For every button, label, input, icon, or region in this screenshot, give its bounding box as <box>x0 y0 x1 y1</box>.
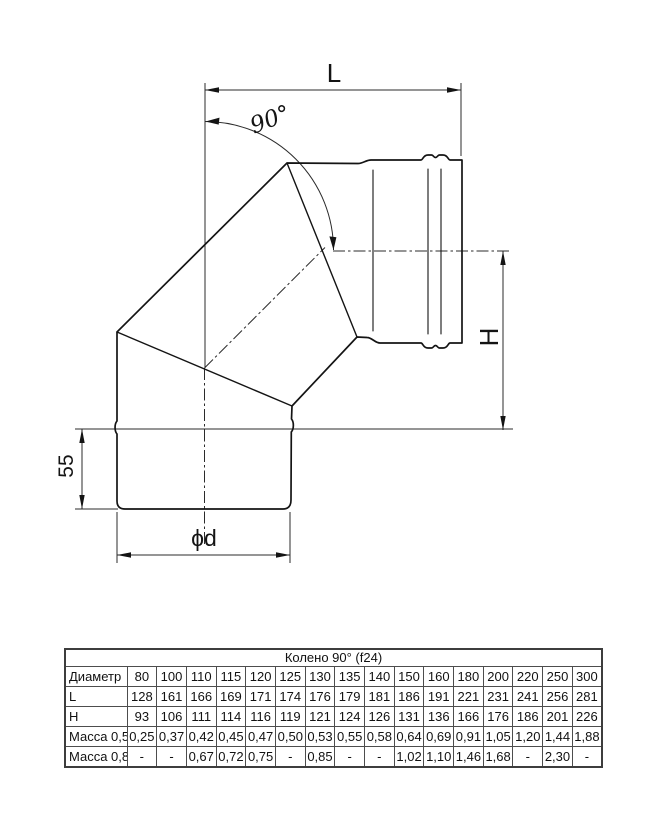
table-cell: 111 <box>186 707 216 727</box>
table-cell: 0,42 <box>186 727 216 747</box>
table-cell: 220 <box>513 667 543 687</box>
table-cell: 119 <box>275 707 305 727</box>
table-cell: 135 <box>335 667 365 687</box>
arrow-arc-bottom <box>329 236 336 250</box>
arrow-phid-right <box>276 552 290 557</box>
table-cell: 2,30 <box>543 747 573 768</box>
arrow-arc-top <box>206 118 220 125</box>
table-cell: 131 <box>394 707 424 727</box>
arrow-phid-left <box>117 552 131 557</box>
row-label: H <box>65 707 127 727</box>
table-cell: 0,50 <box>275 727 305 747</box>
table-cell: 0,37 <box>157 727 187 747</box>
row-label: L <box>65 687 127 707</box>
table-cell: 0,91 <box>454 727 484 747</box>
table-cell: 191 <box>424 687 454 707</box>
table-cell: 136 <box>424 707 454 727</box>
table-cell: - <box>365 747 395 768</box>
table-cell: 0,25 <box>127 727 157 747</box>
table-cell: - <box>127 747 157 768</box>
table-cell: 128 <box>127 687 157 707</box>
table-cell: - <box>572 747 602 768</box>
table-cell: 160 <box>424 667 454 687</box>
table-cell: 124 <box>335 707 365 727</box>
elbow-outline <box>115 155 462 509</box>
table-cell: 0,55 <box>335 727 365 747</box>
table-cell: 169 <box>216 687 246 707</box>
table-cell: 166 <box>186 687 216 707</box>
table-cell: 186 <box>513 707 543 727</box>
label-90deg: 90° <box>247 100 294 139</box>
dimension-arrows <box>79 87 505 557</box>
label-phid: ϕd <box>191 525 217 551</box>
arrow-H-top <box>500 251 505 265</box>
arrow-L-right <box>447 87 461 92</box>
table-cell: 181 <box>365 687 395 707</box>
table-cell: 0,67 <box>186 747 216 768</box>
table-cell: 300 <box>572 667 602 687</box>
table-cell: 125 <box>275 667 305 687</box>
table-cell: 200 <box>483 667 513 687</box>
table-title: Колено 90° (f24) <box>65 649 602 667</box>
table-cell: 241 <box>513 687 543 707</box>
centerline-diagonal <box>205 248 326 369</box>
table-title-row: Колено 90° (f24) <box>65 649 602 667</box>
elbow-outline-group <box>115 155 462 509</box>
joint-line-upper <box>287 163 357 337</box>
table-row: Масса 0,8--0,670,720,75-0,85--1,021,101,… <box>65 747 602 768</box>
table-cell: 0,45 <box>216 727 246 747</box>
dimension-lines <box>75 83 513 563</box>
table-cell: 281 <box>572 687 602 707</box>
table-cell: 121 <box>305 707 335 727</box>
row-label: Диаметр <box>65 667 127 687</box>
table-cell: 0,47 <box>246 727 276 747</box>
table-cell: 1,68 <box>483 747 513 768</box>
spec-table-body: Колено 90° (f24) Диаметр8010011011512012… <box>65 649 602 767</box>
table-cell: 0,69 <box>424 727 454 747</box>
table-cell: 250 <box>543 667 573 687</box>
table-cell: 0,72 <box>216 747 246 768</box>
arrow-55-top <box>79 429 84 443</box>
table-row: Диаметр801001101151201251301351401501601… <box>65 667 602 687</box>
table-row: H931061111141161191211241261311361661761… <box>65 707 602 727</box>
table-cell: 115 <box>216 667 246 687</box>
table-cell: 226 <box>572 707 602 727</box>
table-cell: 1,46 <box>454 747 484 768</box>
table-cell: 1,20 <box>513 727 543 747</box>
arrow-55-bottom <box>79 495 84 509</box>
table-cell: 186 <box>394 687 424 707</box>
table-cell: 1,88 <box>572 727 602 747</box>
table-cell: 140 <box>365 667 395 687</box>
table-cell: - <box>513 747 543 768</box>
table-cell: 1,05 <box>483 727 513 747</box>
table-cell: 179 <box>335 687 365 707</box>
table-cell: 120 <box>246 667 276 687</box>
table-cell: 126 <box>365 707 395 727</box>
table-cell: 176 <box>305 687 335 707</box>
table-cell: 1,10 <box>424 747 454 768</box>
table-cell: 176 <box>483 707 513 727</box>
elbow-technical-drawing: L 90° H 55 ϕd <box>0 0 660 645</box>
table-cell: 1,44 <box>543 727 573 747</box>
table-cell: 80 <box>127 667 157 687</box>
table-cell: 180 <box>454 667 484 687</box>
table-cell: 114 <box>216 707 246 727</box>
table-cell: - <box>335 747 365 768</box>
elbow-drawing-svg: L 90° H 55 ϕd <box>0 0 660 640</box>
table-cell: 0,85 <box>305 747 335 768</box>
table-cell: 161 <box>157 687 187 707</box>
arrow-L-left <box>205 87 219 92</box>
spec-table: Колено 90° (f24) Диаметр8010011011512012… <box>64 648 603 768</box>
table-cell: - <box>275 747 305 768</box>
table-cell: 174 <box>275 687 305 707</box>
table-cell: 116 <box>246 707 276 727</box>
row-label: Масса 0,8 <box>65 747 127 768</box>
table-cell: 100 <box>157 667 187 687</box>
table-cell: 231 <box>483 687 513 707</box>
arrow-H-bottom <box>500 416 505 430</box>
table-cell: 171 <box>246 687 276 707</box>
label-55: 55 <box>55 454 78 477</box>
table-row: Масса 0,50,250,370,420,450,470,500,530,5… <box>65 727 602 747</box>
table-cell: 0,75 <box>246 747 276 768</box>
table-cell: 0,64 <box>394 727 424 747</box>
table-cell: 93 <box>127 707 157 727</box>
table-cell: 130 <box>305 667 335 687</box>
table-cell: 150 <box>394 667 424 687</box>
table-row: L128161166169171174176179181186191221231… <box>65 687 602 707</box>
table-cell: 0,53 <box>305 727 335 747</box>
table-cell: - <box>157 747 187 768</box>
table-cell: 106 <box>157 707 187 727</box>
table-cell: 0,58 <box>365 727 395 747</box>
table-cell: 201 <box>543 707 573 727</box>
center-lines <box>205 248 513 547</box>
label-H: H <box>474 328 504 347</box>
table-cell: 110 <box>186 667 216 687</box>
row-label: Масса 0,5 <box>65 727 127 747</box>
table-cell: 221 <box>454 687 484 707</box>
table-cell: 166 <box>454 707 484 727</box>
table-cell: 1,02 <box>394 747 424 768</box>
label-L: L <box>327 58 341 88</box>
table-cell: 256 <box>543 687 573 707</box>
